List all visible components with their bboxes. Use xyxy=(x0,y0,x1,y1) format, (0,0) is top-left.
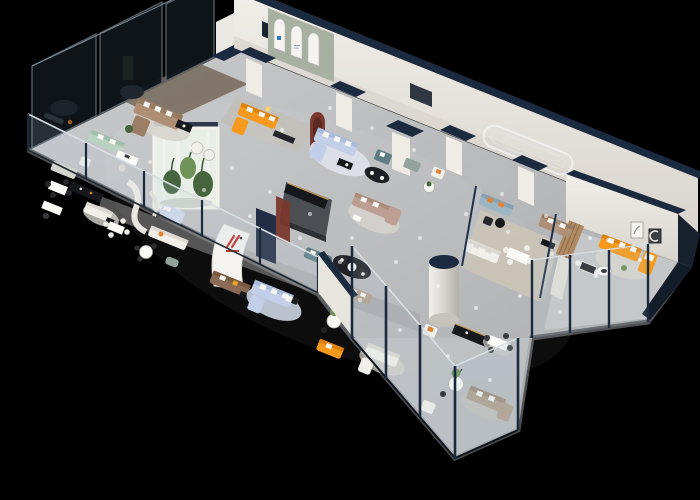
plant xyxy=(427,182,432,187)
dining-chair xyxy=(484,335,490,341)
table-lamp-glow xyxy=(266,107,271,112)
white-barrel-chair xyxy=(204,150,215,161)
floorplan-render-stage xyxy=(0,0,700,500)
cylinder-cap xyxy=(429,255,459,269)
arch-panel xyxy=(274,19,285,52)
dining-chair xyxy=(120,218,126,224)
decor-bowl xyxy=(380,176,384,180)
office-silhouette xyxy=(120,85,144,99)
dining-chair xyxy=(503,247,509,253)
dining-chair xyxy=(524,245,530,251)
stool xyxy=(321,327,327,333)
office-plant-silhouette xyxy=(123,56,133,80)
dining-chair xyxy=(507,259,513,265)
plant-foliage xyxy=(193,171,213,197)
white-cylinder-column xyxy=(429,255,459,327)
dining-chair xyxy=(50,192,56,198)
dining-chair xyxy=(151,243,157,249)
arch-panel xyxy=(308,33,319,66)
white-barrel-chair xyxy=(191,142,203,154)
arch-caption-line xyxy=(294,48,299,49)
dining-chair xyxy=(63,179,69,185)
wing-wall-art-light xyxy=(631,222,643,238)
plant-foliage xyxy=(180,157,196,179)
dining-chair xyxy=(124,229,130,235)
office-accent xyxy=(68,120,72,124)
office-silhouette xyxy=(50,100,78,116)
desk-chair xyxy=(43,213,49,219)
arch-caption-line xyxy=(294,45,300,46)
cylinder-base xyxy=(429,313,459,327)
decor-bowl xyxy=(370,171,374,175)
dining-chair xyxy=(108,232,114,238)
nook-table xyxy=(424,182,435,193)
right-glass-wall xyxy=(532,244,648,338)
dining-chair xyxy=(137,256,143,262)
dining-chair xyxy=(103,221,109,227)
arch-panel xyxy=(291,26,302,59)
dining-chair xyxy=(134,245,140,251)
dining-chair xyxy=(66,190,72,196)
plant xyxy=(125,125,133,133)
wing-wall-art-dark xyxy=(649,229,661,243)
floorplan-render xyxy=(0,0,700,500)
blue-arch-logo-icon xyxy=(277,36,281,40)
dining-chair xyxy=(503,333,509,339)
dining-chair xyxy=(45,181,51,187)
black-round-table xyxy=(495,218,505,228)
cylinder-body xyxy=(429,262,459,320)
